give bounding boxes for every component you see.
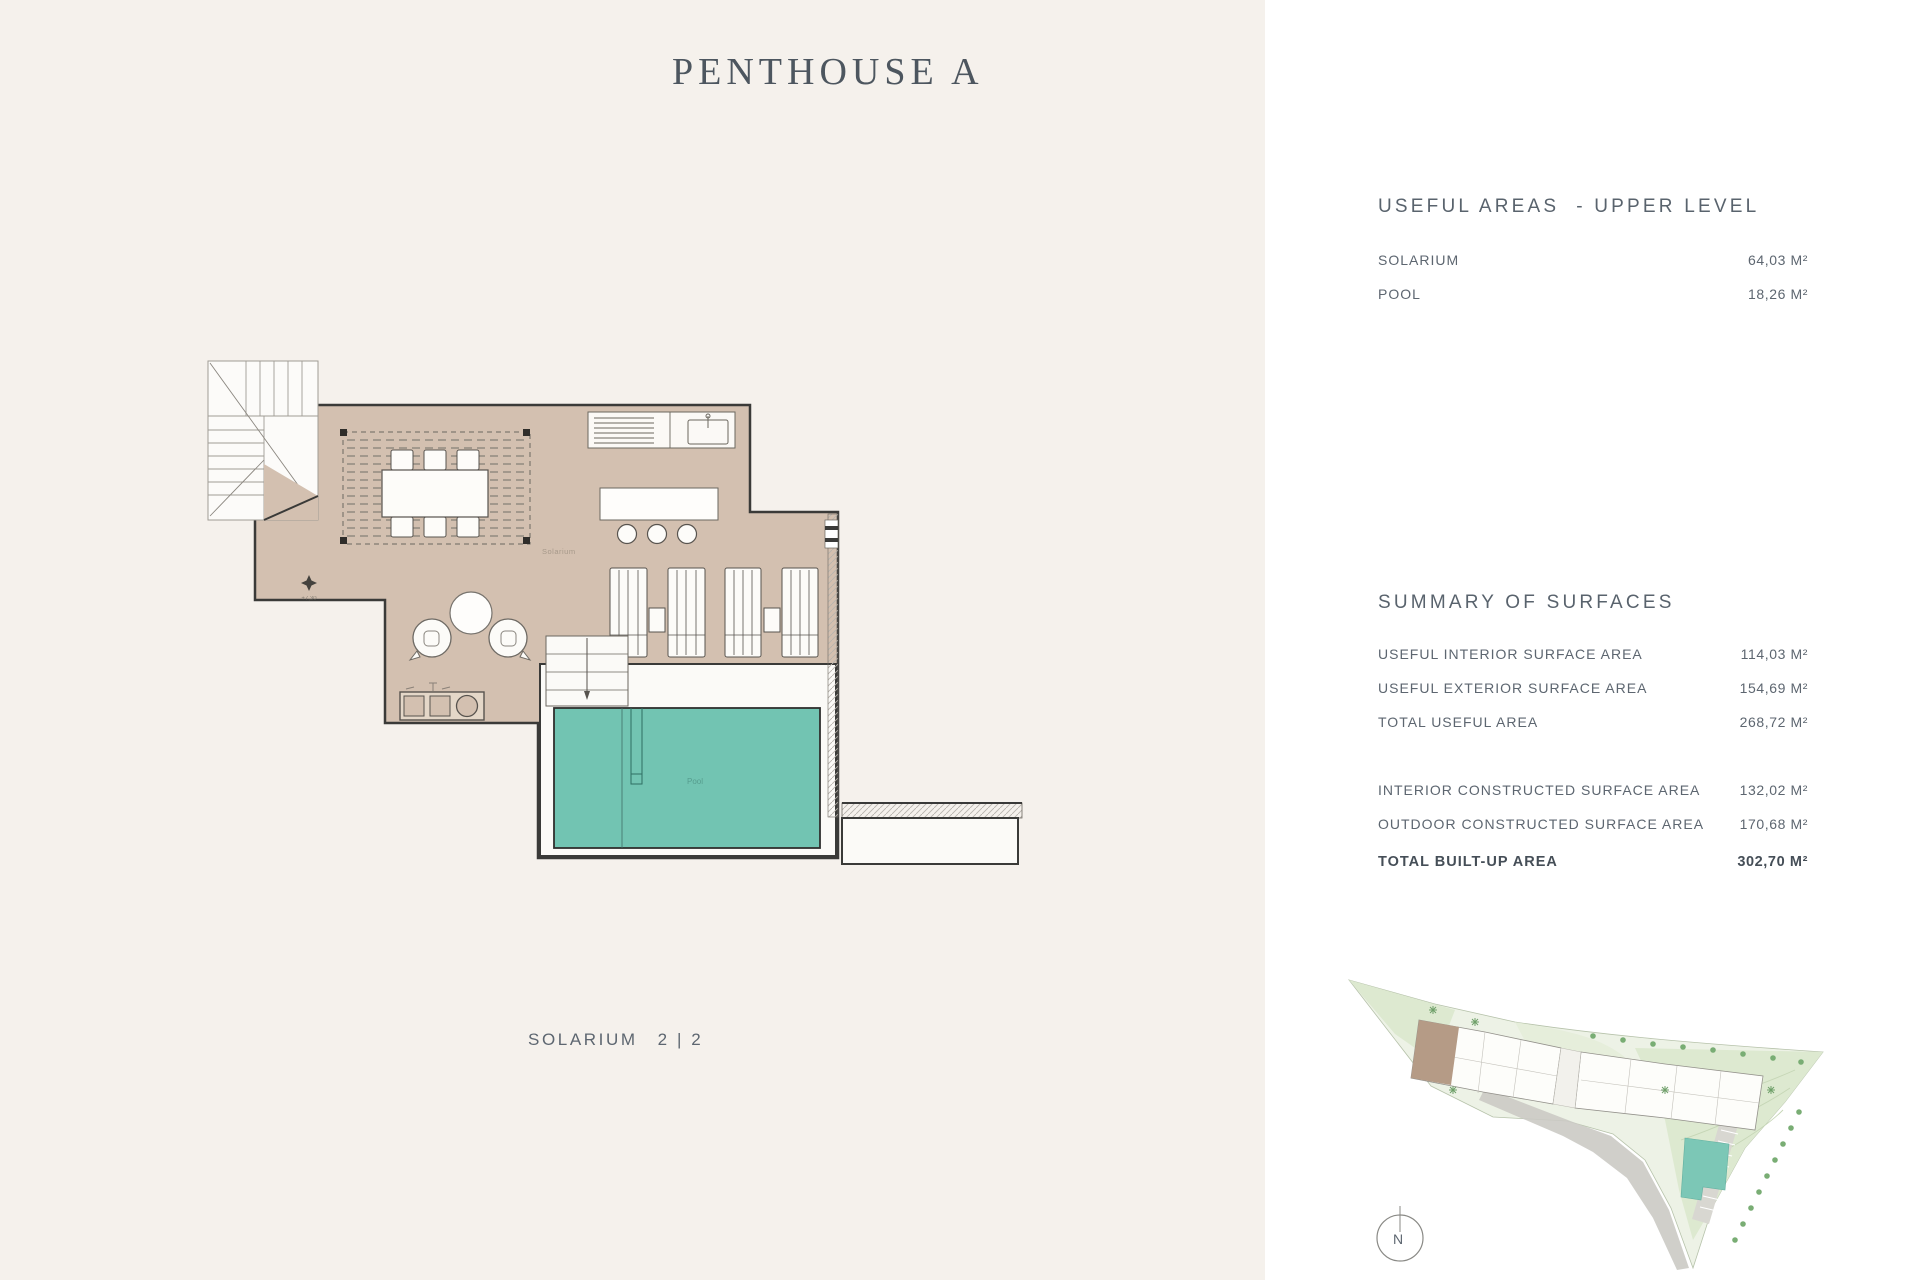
bar-counter bbox=[600, 488, 718, 520]
svg-text:+7,30: +7,30 bbox=[301, 596, 317, 602]
dining-set bbox=[382, 450, 488, 537]
pool-steps bbox=[546, 636, 628, 706]
plan-page-indicator: 2 | 2 bbox=[658, 1030, 704, 1050]
area-label: USEFUL EXTERIOR SURFACE AREA bbox=[1378, 680, 1647, 696]
total-value: 302,70 M² bbox=[1737, 854, 1808, 870]
area-value: 18,26 M² bbox=[1748, 286, 1808, 302]
area-label: POOL bbox=[1378, 286, 1421, 302]
summary-title: SUMMARY OF SURFACES bbox=[1378, 592, 1808, 614]
area-row: USEFUL EXTERIOR SURFACE AREA 154,69 M² bbox=[1378, 680, 1808, 702]
area-row: OUTDOOR CONSTRUCTED SURFACE AREA 170,68 … bbox=[1378, 816, 1808, 838]
area-value: 114,03 M² bbox=[1741, 646, 1808, 662]
total-row: TOTAL BUILT-UP AREA 302,70 M² bbox=[1378, 854, 1808, 876]
plan-name: SOLARIUM bbox=[528, 1030, 638, 1050]
staircase bbox=[208, 361, 318, 520]
pool: Pool bbox=[554, 708, 820, 848]
area-value: 268,72 M² bbox=[1740, 714, 1808, 730]
room-label: Solarium bbox=[542, 547, 576, 556]
door-jamb bbox=[825, 520, 838, 548]
pool-label: Pool bbox=[687, 777, 703, 786]
area-row: TOTAL USEFUL AREA 268,72 M² bbox=[1378, 714, 1808, 736]
bar-stools bbox=[618, 525, 697, 544]
area-row: USEFUL INTERIOR SURFACE AREA 114,03 M² bbox=[1378, 646, 1808, 668]
area-row: SOLARIUM 64,03 M² bbox=[1378, 252, 1808, 274]
brochure-page: PENTHOUSE A bbox=[0, 0, 1920, 1280]
area-row: POOL 18,26 M² bbox=[1378, 286, 1808, 308]
area-value: 154,69 M² bbox=[1740, 680, 1808, 696]
area-value: 64,03 M² bbox=[1748, 252, 1808, 268]
wall-hatch bbox=[828, 514, 838, 817]
plan-caption: SOLARIUM 2 | 2 bbox=[528, 1030, 703, 1050]
walkway bbox=[842, 803, 1022, 818]
summary-table-useful: USEFUL INTERIOR SURFACE AREA 114,03 M² U… bbox=[1378, 646, 1808, 748]
north-compass-icon: N bbox=[1377, 1206, 1423, 1261]
round-table bbox=[450, 592, 492, 634]
total-label: TOTAL BUILT-UP AREA bbox=[1378, 854, 1558, 870]
area-label: INTERIOR CONSTRUCTED SURFACE AREA bbox=[1378, 782, 1700, 798]
area-value: 170,68 M² bbox=[1740, 816, 1808, 832]
area-label: SOLARIUM bbox=[1378, 252, 1459, 268]
area-label: TOTAL USEFUL AREA bbox=[1378, 714, 1538, 730]
useful-areas-title: USEFUL AREAS - UPPER LEVEL bbox=[1378, 196, 1808, 218]
site-plan: N bbox=[1335, 970, 1855, 1280]
area-label: USEFUL INTERIOR SURFACE AREA bbox=[1378, 646, 1643, 662]
area-row: INTERIOR CONSTRUCTED SURFACE AREA 132,02… bbox=[1378, 782, 1808, 804]
info-panel: USEFUL AREAS - UPPER LEVEL SOLARIUM 64,0… bbox=[1265, 0, 1920, 1280]
summary-table-constructed: INTERIOR CONSTRUCTED SURFACE AREA 132,02… bbox=[1378, 782, 1808, 850]
page-title: PENTHOUSE A bbox=[672, 50, 984, 94]
area-value: 132,02 M² bbox=[1740, 782, 1808, 798]
area-label: OUTDOOR CONSTRUCTED SURFACE AREA bbox=[1378, 816, 1704, 832]
outdoor-kitchen bbox=[588, 412, 735, 448]
plan-panel: PENTHOUSE A bbox=[0, 0, 1265, 1280]
north-label: N bbox=[1393, 1231, 1403, 1247]
summary-total: TOTAL BUILT-UP AREA 302,70 M² bbox=[1378, 854, 1808, 888]
floor-plan: Pool bbox=[190, 340, 1050, 900]
useful-areas-table: SOLARIUM 64,03 M² POOL 18,26 M² bbox=[1378, 252, 1808, 320]
planter bbox=[842, 818, 1018, 864]
highlighted-unit bbox=[1411, 1020, 1459, 1085]
